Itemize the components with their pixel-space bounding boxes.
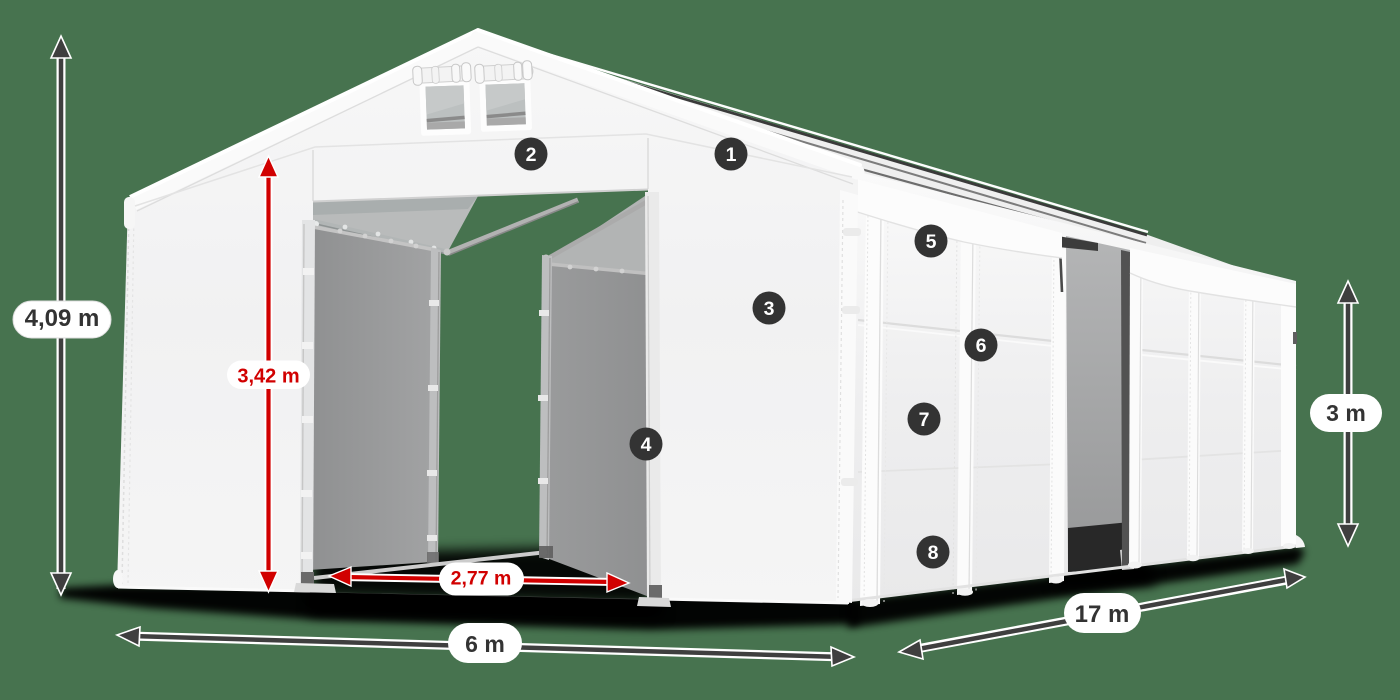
svg-text:17 m: 17 m xyxy=(1075,601,1130,628)
svg-text:4,09 m: 4,09 m xyxy=(25,305,100,332)
svg-text:3,42 m: 3,42 m xyxy=(237,366,299,388)
svg-text:8: 8 xyxy=(928,542,939,564)
svg-text:7: 7 xyxy=(919,409,930,431)
svg-text:2: 2 xyxy=(526,144,537,166)
svg-text:4: 4 xyxy=(641,434,652,456)
svg-text:3 m: 3 m xyxy=(1326,400,1366,426)
svg-text:6 m: 6 m xyxy=(465,631,505,657)
svg-text:1: 1 xyxy=(726,144,737,166)
svg-text:2,77 m: 2,77 m xyxy=(451,568,512,590)
svg-text:6: 6 xyxy=(976,335,987,357)
svg-text:5: 5 xyxy=(926,231,937,253)
svg-text:3: 3 xyxy=(764,298,775,320)
